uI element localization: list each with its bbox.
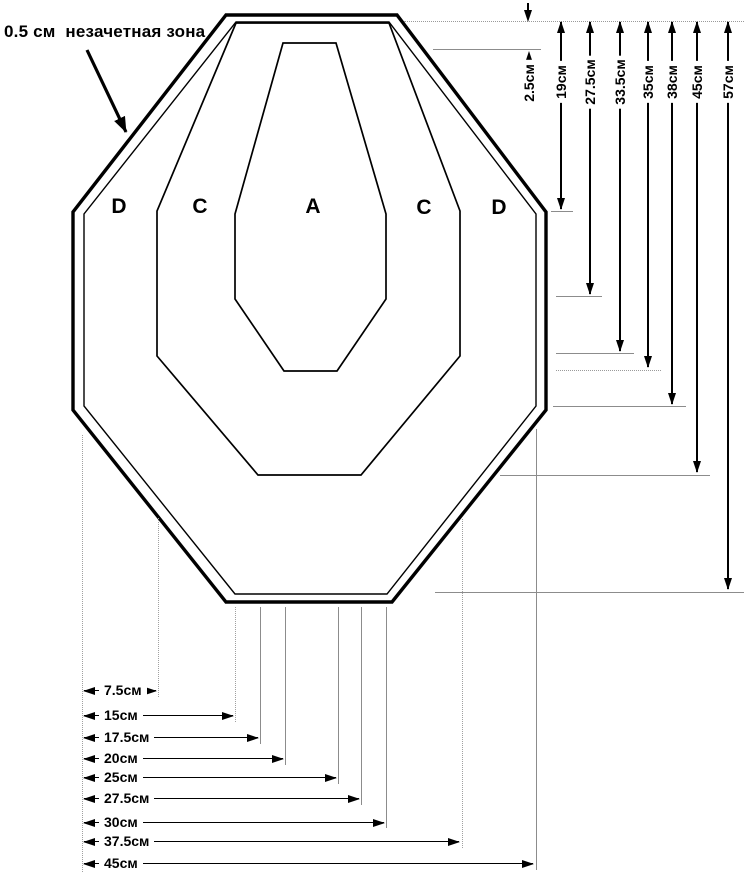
dim-label: 27.5см [99,790,154,806]
arrow-up-icon [644,21,652,33]
arrow-left-icon [83,774,95,782]
arrow-right-icon [222,712,234,720]
dim-label: 25см [99,769,143,785]
arrow-left-icon [83,819,95,827]
arrow-down-icon [724,578,732,590]
horizontal-dim: 7.5см [84,690,156,691]
dim-label: 35см [639,61,657,103]
arrow-left-icon [83,687,95,695]
dim-extension-line [536,429,537,870]
arrow-right-icon [448,838,460,846]
arrow-right-icon [373,819,385,827]
dim-reference-line [556,370,661,371]
arrow-up-icon [616,21,624,33]
horizontal-dim: 37.5см [84,841,459,842]
dim-extension-line [260,607,261,744]
horizontal-dim: 15см [84,715,233,716]
dim-label: 7.5см [99,682,147,698]
dim-reference-line [500,475,710,476]
arrow-down-icon [586,283,594,295]
zone-letter-c: C [192,195,207,219]
dim-extension-line [386,607,387,828]
arrow-left-icon [83,734,95,742]
horizontal-dim: 20см [84,758,283,759]
left-reference-line [82,435,83,872]
horizontal-dim: 17.5см [84,737,258,738]
arrow-right-icon [522,860,534,868]
arrow-left-icon [83,712,95,720]
arrow-down-icon [668,393,676,405]
dim-label: 37.5см [99,833,154,849]
arrow-right-icon [247,734,259,742]
dim-extension-line [338,607,339,784]
arrow-left-icon [83,860,95,868]
arrow-right-icon [272,755,284,763]
arrow-down-icon [693,461,701,473]
arrow-left-icon [83,795,95,803]
dim-extension-line [462,519,463,848]
arrow-left-icon [83,838,95,846]
arrow-right-icon [325,774,337,782]
horizontal-dim: 27.5см [84,798,359,799]
horizontal-dim: 25см [84,777,336,778]
zone-letter-d: D [111,195,126,219]
dim-label: 17.5см [99,729,154,745]
dim-label: 20см [99,750,143,766]
arrow-right-icon [348,795,360,803]
dim-label: 2.5см [520,60,538,106]
arrow-down-icon [524,10,532,22]
dim-label: 15см [99,707,143,723]
outer-border-octagon [73,15,546,602]
dim-extension-line [285,607,286,765]
dim-reference-line [556,353,634,354]
dim-reference-line [551,211,573,212]
arrow-down-icon [644,356,652,368]
non-scoring-zone-label: 0.5 см незачетная зона [4,22,205,42]
arrow-up-icon [693,21,701,33]
dim-label: 45см [688,61,706,103]
arrow-right-icon [145,687,157,695]
zone-letter-c: C [416,196,431,220]
arrow-up-icon [724,21,732,33]
dim-extension-line [235,607,236,722]
dim-extension-line [158,518,159,697]
horizontal-dim: 45см [84,863,533,864]
dim-shaft [727,22,729,589]
dim-reference-line [556,296,602,297]
dim-label: 38см [663,61,681,103]
dim-reference-line [433,49,541,50]
dim-shaft [560,22,562,209]
arrow-down-icon [616,340,624,352]
dim-label: 57см [719,61,737,103]
dim-reference-line [435,592,744,593]
c-zone-boundary [157,23,460,475]
dim-label: 27.5см [581,55,599,108]
dim-label: 30см [99,814,143,830]
dim-reference-line [553,406,686,407]
arrow-left-icon [83,755,95,763]
zone-letter-a: A [305,195,320,219]
zone-letter-d: D [491,196,506,220]
arrow-up-icon [668,21,676,33]
arrow-down-icon [557,198,565,210]
dim-extension-line [361,607,362,805]
target-dimension-diagram: 0.5 см незачетная зона 2.5см19см27.5см33… [0,0,744,885]
annotation-arrow [87,50,126,132]
dim-label: 45см [99,855,143,871]
horizontal-dim: 30см [84,822,384,823]
dim-label: 33.5см [611,55,629,108]
arrow-up-icon [586,21,594,33]
arrow-up-icon [557,21,565,33]
dim-label: 19см [552,61,570,103]
